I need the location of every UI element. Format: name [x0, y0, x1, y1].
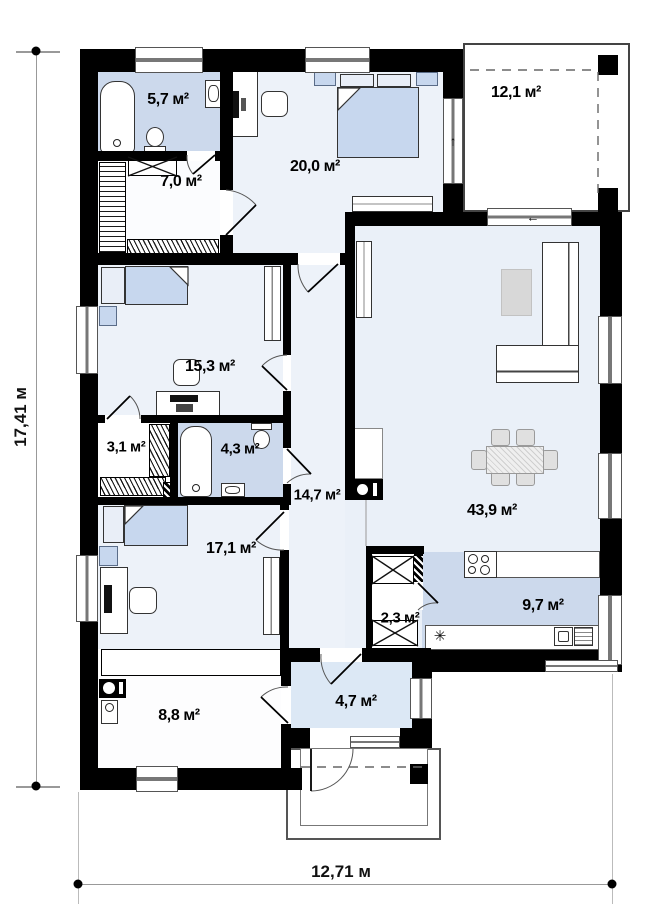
window [598, 595, 622, 665]
room-label-utility-room: 8,8 м² [158, 707, 199, 725]
wall [361, 648, 431, 662]
dim-line-vertical [36, 51, 37, 786]
fireplace-door [357, 484, 368, 495]
wall [345, 212, 355, 500]
window [410, 678, 432, 719]
shaft-grille [414, 556, 423, 582]
room-label-bedroom-2: 15,3 м² [185, 358, 235, 376]
wall [98, 253, 228, 265]
cabinet-3 [263, 557, 280, 635]
terrace-door-arrow-icon: ↑ [450, 134, 457, 149]
room-label-bedroom-3: 17,1 м² [206, 540, 256, 558]
window [305, 47, 370, 73]
room-label-bedroom-1: 20,0 м² [290, 158, 340, 176]
nightstand-2 [99, 306, 117, 326]
nightstand-1a [314, 72, 336, 86]
closet-1-rail [99, 162, 126, 253]
burner [481, 555, 489, 563]
window [598, 453, 622, 519]
kitchen-asterisk-icon: ✳ [434, 627, 447, 645]
cabinet-living [356, 241, 372, 318]
wall [80, 49, 98, 790]
door-opening [105, 415, 141, 423]
pillow-1b [377, 74, 411, 87]
sink-1-basin [208, 85, 219, 102]
nightstand-3 [99, 546, 118, 566]
dim-label-height: 17,41 м [11, 387, 31, 447]
wall [598, 55, 618, 75]
dining-chair [471, 450, 487, 470]
room-label-closet-1: 7,0 м² [160, 173, 201, 191]
window [135, 47, 203, 73]
bed-1 [337, 87, 419, 158]
dish-rack [574, 627, 593, 646]
dim-dot [32, 47, 41, 56]
fireplace-hearth [354, 428, 383, 479]
room-label-terrace: 12,1 м² [491, 84, 541, 102]
pillow-1a [340, 74, 374, 87]
room-label-bathroom-1: 5,7 м² [147, 91, 188, 109]
toilet-1-bowl [146, 127, 164, 147]
boiler-vent [119, 682, 123, 694]
porch-post [410, 764, 428, 784]
water-heater-dial [105, 703, 114, 712]
wall [170, 415, 178, 505]
chair-3 [129, 587, 157, 614]
pillow-2 [101, 267, 125, 304]
dim-dot [608, 880, 617, 889]
wall [80, 768, 302, 790]
porch-inner [300, 748, 428, 826]
room-label-entrance-hall: 4,7 м² [335, 693, 376, 711]
room-label-living-room: 43,9 м² [467, 502, 517, 520]
hallway-floor [289, 265, 345, 648]
burner [468, 554, 478, 564]
wall [400, 728, 432, 748]
door-opening [220, 190, 233, 235]
dim-label-width: 12,71 м [311, 862, 371, 882]
wall [345, 212, 622, 226]
door-opening [298, 253, 340, 265]
cabinet-2 [264, 266, 281, 341]
sink-2-basin [225, 486, 240, 494]
door-opening [320, 648, 362, 662]
nightstand-1b [416, 72, 438, 86]
dim-dot [74, 880, 83, 889]
bathtub-1-drain [113, 139, 121, 147]
window [76, 555, 98, 622]
wardrobe-3 [101, 649, 281, 676]
room-label-bathroom-2: 4,3 м² [221, 441, 260, 458]
door-opening [283, 355, 291, 391]
door-opening [281, 686, 291, 724]
closet-2-shelf [100, 477, 166, 496]
wall [366, 546, 424, 554]
wall [366, 552, 372, 648]
sofa-seat [496, 345, 579, 383]
dining-chair [491, 429, 510, 446]
wardrobe-1 [352, 196, 433, 212]
room-label-kitchen: 9,7 м² [522, 597, 563, 615]
burner [480, 565, 490, 575]
door-opening [414, 582, 423, 610]
fireplace-vent [373, 483, 377, 496]
chair-1 [261, 91, 288, 117]
computer-1-stand [241, 98, 246, 111]
corner-window [545, 660, 618, 672]
dining-table [486, 446, 544, 474]
door-opening [187, 151, 215, 161]
window [598, 316, 622, 384]
window [76, 306, 98, 374]
computer-2 [170, 395, 198, 402]
door-opening [280, 510, 289, 550]
keyboard-2 [176, 404, 193, 412]
bed-2 [125, 266, 188, 305]
room-label-shaft-closet: 2,3 м² [381, 610, 420, 627]
kitchen-sink-basin [558, 631, 569, 642]
computer-3 [104, 585, 112, 613]
window [136, 766, 178, 792]
dining-chair [516, 429, 535, 446]
terrace-window-arrow-icon: ← [527, 210, 540, 225]
dim-dot [32, 782, 41, 791]
dim-line-horizontal [78, 884, 612, 885]
dim-extension [612, 674, 613, 904]
bed-3 [124, 505, 188, 546]
wall [598, 188, 618, 212]
toilet-2-tank [251, 423, 272, 430]
dining-chair [542, 450, 558, 470]
boiler-door [103, 682, 115, 694]
floor-plan: 5,7 м² 7,0 м² 20,0 м² 12,1 м² 15,3 м² 3,… [0, 0, 655, 915]
closet-2-rail [149, 424, 170, 477]
bathtub-2-drain [192, 484, 200, 492]
room-label-hallway: 14,7 м² [294, 487, 341, 504]
shaft-box-top [372, 556, 414, 584]
door-opening [283, 448, 291, 484]
wall [98, 497, 283, 505]
entry-door-sill [350, 736, 400, 748]
coffee-table [501, 269, 532, 316]
burner [468, 566, 476, 574]
pillow-3 [103, 506, 124, 543]
room-label-closet-2: 3,1 м² [107, 439, 146, 456]
